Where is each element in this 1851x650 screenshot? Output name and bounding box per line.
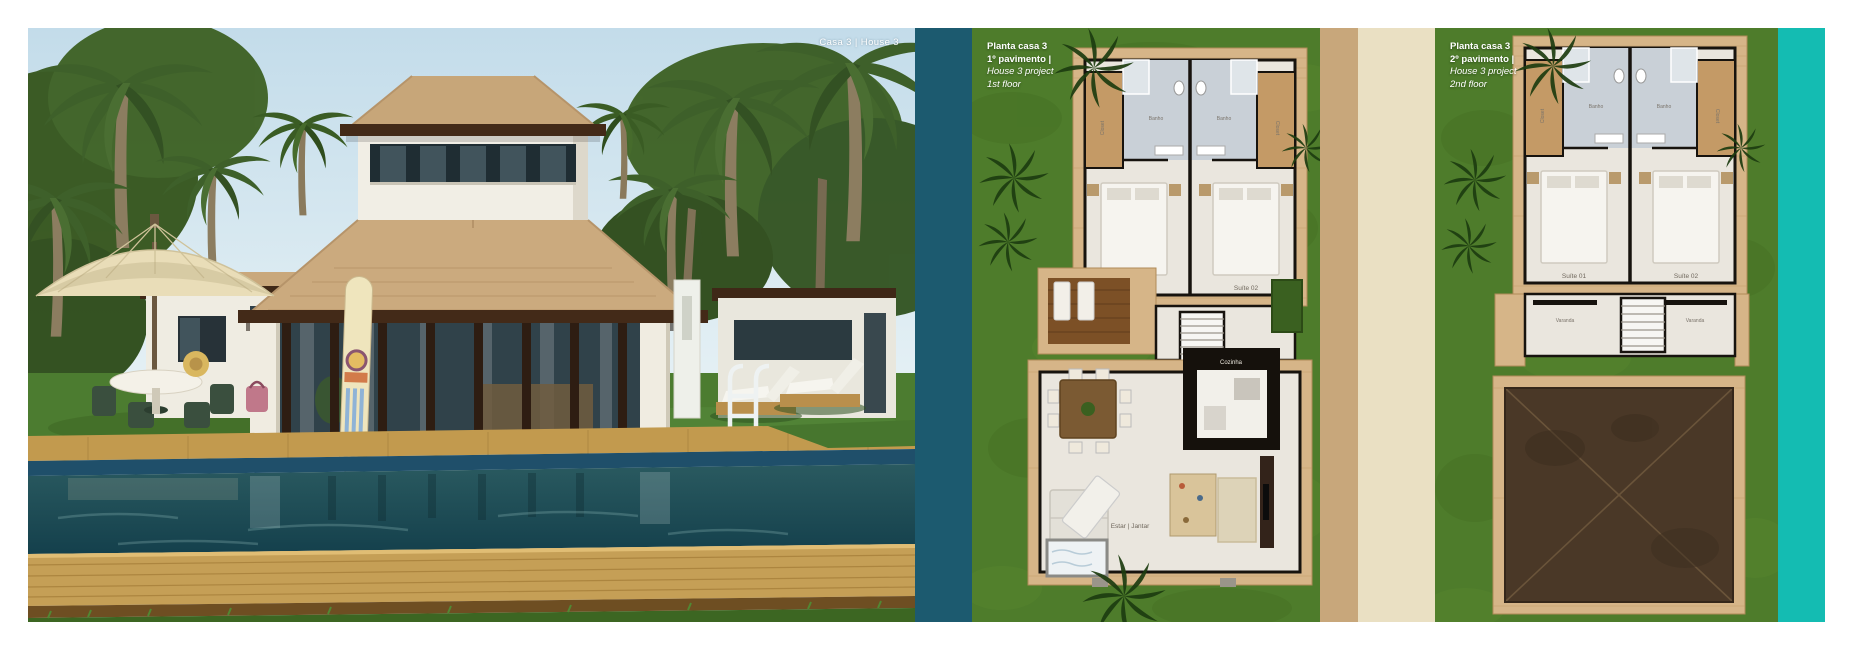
house-render-photo: Casa 3 | House 3 (28, 28, 915, 622)
roof-over-living-wing (1493, 376, 1745, 614)
kitchen-block: Cozinha (1183, 348, 1280, 450)
plan1-title: Planta casa 3 1º pavimento | House 3 pro… (987, 41, 1054, 91)
rug (1218, 478, 1256, 542)
outdoor-shower-column (674, 280, 700, 418)
beach-bag (246, 382, 268, 412)
cyan-divider-band (1778, 28, 1825, 622)
plan1-title-line4: 1st floor (987, 79, 1054, 92)
photo-caption: Casa 3 | House 3 (819, 37, 899, 48)
stairs-upper (1621, 298, 1665, 352)
plan2-title: Planta casa 3 2º pavimento | House 3 pro… (1450, 41, 1517, 91)
console-sideboard (1170, 474, 1216, 536)
balcony-railing-left (1533, 300, 1597, 305)
tan-divider-strip (1320, 28, 1358, 622)
floor-plan-1: Banho Banho Closet Closet Suíte 01 Suíte… (972, 28, 1320, 622)
plan2-title-line4: 2nd floor (1450, 79, 1517, 92)
plunge-pool (1047, 540, 1107, 576)
floor-plan-2-drawing: Varanda Varanda (1435, 28, 1778, 622)
varanda-level: Varanda Varanda (1495, 294, 1749, 366)
balcony-railing-right (1663, 300, 1727, 305)
plan2-title-line1: Planta casa 3 (1450, 41, 1517, 54)
varanda-left-label: Varanda (1556, 318, 1575, 324)
kitchen-label: Cozinha (1220, 360, 1243, 366)
plan1-title-line3: House 3 project (987, 66, 1054, 79)
house-render-scene (28, 28, 915, 622)
teal-divider-band (915, 28, 972, 622)
garden-bed (1272, 280, 1302, 332)
tv-wall (1260, 456, 1274, 548)
plan2-title-line3: House 3 project (1450, 66, 1517, 79)
plan1-title-line2: 1º pavimento | (987, 54, 1054, 67)
brochure-page: Casa 3 | House 3 (0, 0, 1851, 650)
cream-divider-strip (1358, 28, 1435, 622)
floor-plan-1-drawing: Banho Banho Closet Closet Suíte 01 Suíte… (972, 28, 1320, 622)
plan2-title-line2: 2º pavimento | (1450, 54, 1517, 67)
varanda-right-label: Varanda (1686, 318, 1705, 324)
house-glass-wall (280, 323, 670, 443)
plan1-title-line1: Planta casa 3 (987, 41, 1054, 54)
floor-plan-2: Varanda Varanda (1435, 28, 1778, 622)
terrace-deck (1038, 268, 1156, 354)
house-upper-floor (358, 128, 588, 223)
living-label: Estar | Jantar (1111, 523, 1150, 530)
white-pillar-left (250, 323, 280, 446)
